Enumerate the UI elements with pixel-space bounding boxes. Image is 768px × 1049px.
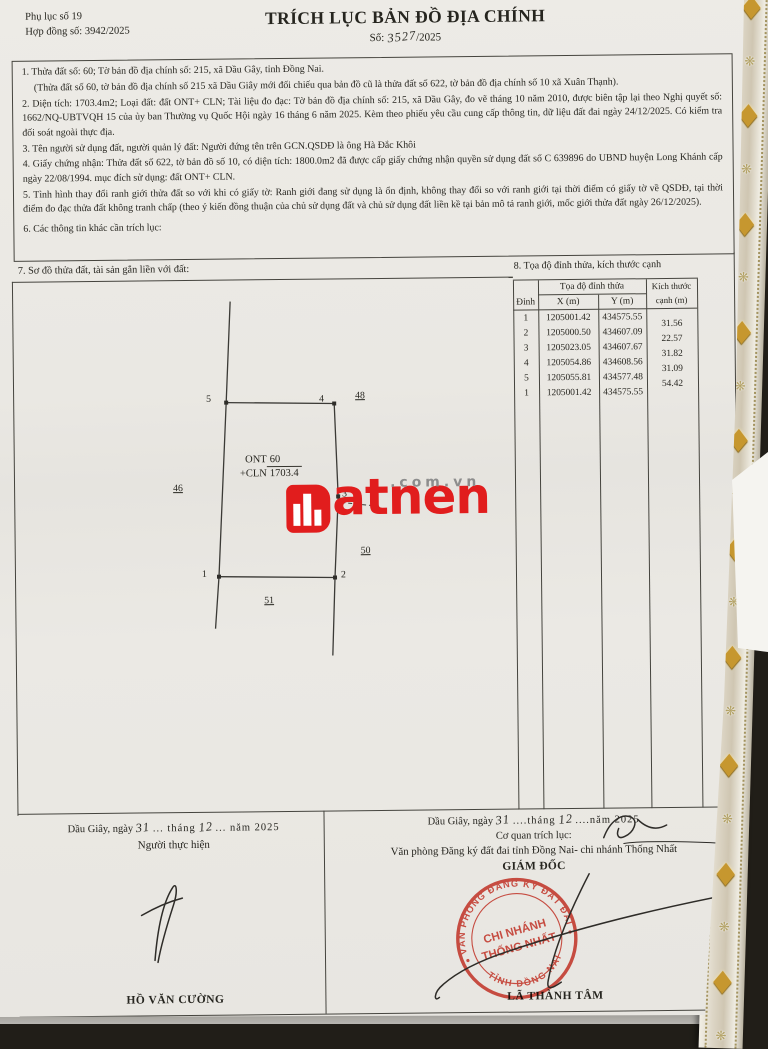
table-row-vertex: 2	[513, 326, 538, 341]
executor-role: Người thực hiện	[34, 838, 314, 853]
frame-rosette-ornament: ❋	[715, 1029, 726, 1042]
datnen-logo-icon	[286, 485, 331, 533]
section8-heading: 8. Tọa độ đỉnh thửa, kích thước cạnh	[514, 258, 714, 271]
frame-diamond-ornament: ◆	[713, 966, 732, 997]
document-number-suffix: /2025	[416, 31, 441, 43]
table-row-x: 1205055.81	[539, 371, 599, 387]
table-row-vertex: 3	[514, 341, 539, 356]
frame-rosette-ornament: ❋	[722, 812, 733, 825]
edge-length: 31.82	[647, 347, 698, 363]
table-row-x: 1205023.05	[539, 341, 599, 357]
table-row-y: 434608.56	[599, 355, 647, 371]
stamp-separator-dot	[568, 930, 572, 934]
parcel-number: 60	[267, 453, 302, 467]
document-number-handwritten: 3527	[386, 28, 417, 46]
table-row-y: 434575.55	[599, 385, 647, 401]
document-title: TRÍCH LỤC BẢN ĐỒ ĐỊA CHÍNH	[165, 4, 645, 30]
table-row-y: 434577.48	[599, 370, 647, 386]
land-use-code-1: ONT	[240, 453, 267, 467]
neighbor-parcel-50: 50	[361, 545, 371, 556]
table-row-y: 434607.09	[598, 325, 646, 341]
title-block: TRÍCH LỤC BẢN ĐỒ ĐỊA CHÍNH Số: 3527/2025	[165, 4, 645, 47]
frame-diamond-ornament: ◆	[719, 749, 738, 780]
table-row-x: 1205001.42	[539, 386, 599, 402]
edge-length: 22.57	[646, 332, 697, 348]
table-row-vertex: 4	[514, 356, 539, 371]
item-2: 2. Diện tích: 1703.4m2; Loại đất: đất ON…	[22, 90, 722, 141]
date-month-handwritten: 12	[557, 811, 573, 828]
date-month-label: ....tháng	[513, 815, 556, 826]
boundary-left-line	[212, 302, 233, 629]
vertex2-label: 2	[341, 569, 346, 580]
vertex1-dot	[217, 575, 221, 579]
table-col-edge: Kích thước cạnh (m)	[646, 279, 697, 310]
date-day-handwritten: 31	[495, 812, 511, 829]
edge-length: 31.56	[646, 317, 697, 333]
table-row-y: 434575.55	[598, 310, 646, 326]
table-line-right	[697, 279, 704, 808]
stamp-separator-dot	[466, 959, 470, 963]
boundary-bottom-line	[219, 575, 335, 578]
document-number-prefix: Số:	[370, 32, 385, 44]
table-row-x: 1205054.86	[539, 356, 599, 372]
vertex4-label: 4	[319, 394, 324, 405]
contract-number: Hợp đồng số: 3942/2025	[25, 24, 130, 40]
table-row-x: 1205001.42	[538, 311, 598, 327]
executor-name: HỒ VĂN CƯỜNG	[65, 993, 285, 1007]
page-border-left	[12, 282, 19, 816]
date-month-handwritten: 12	[198, 819, 214, 836]
table-row-x: 1205000.50	[538, 326, 598, 342]
logo-building-bar	[303, 494, 311, 526]
date-place: Dầu Giây, ngày	[427, 816, 493, 828]
photo-of-land-document: { "doc": { "appendix": "Phụ lục số 19", …	[0, 0, 768, 1024]
logo-building-bar	[314, 510, 321, 526]
date-month-label: ... tháng	[153, 823, 196, 834]
vertex4-dot	[332, 401, 336, 405]
frame-rosette-ornament: ❋	[741, 162, 752, 175]
edge-length: 31.09	[647, 362, 698, 378]
table-row-vertex: 1	[513, 311, 538, 326]
items-section: 1. Thửa đất số: 60; Tờ bản đồ địa chính …	[13, 54, 733, 260]
neighbor-parcel-51: 51	[264, 595, 274, 606]
neighbor-parcel-46: 46	[173, 483, 183, 494]
table-col-x: X (m)	[538, 295, 598, 311]
executor-signature-stroke	[141, 898, 182, 915]
agency-label: Cơ quan trích lục:	[334, 828, 734, 843]
frame-diamond-ornament: ◆	[742, 0, 761, 22]
executor-signature	[154, 886, 177, 963]
vertex1-label: 1	[202, 569, 207, 580]
footer-divider	[323, 811, 326, 1014]
item-6: 6. Các thông tin khác cần trích lục:	[23, 215, 723, 237]
date-day-handwritten: 31	[135, 820, 151, 837]
watermark-domain-text: .com.vn	[390, 474, 480, 491]
frame-diamond-ornament: ◆	[716, 858, 735, 889]
frame-rosette-ornament: ❋	[735, 379, 746, 392]
date-year-label: ....năm 2025	[575, 814, 639, 826]
date-year-label: ... năm 2025	[215, 822, 279, 834]
date-place: Dầu Giây, ngày	[68, 824, 134, 836]
document-content: Phụ lục số 19 Hợp đồng số: 3942/2025 TRÍ…	[0, 0, 752, 1022]
section7-rule	[12, 277, 513, 283]
vertex5-dot	[224, 401, 228, 405]
frame-rosette-ornament: ❋	[718, 921, 729, 934]
table-row-vertex: 1	[514, 386, 539, 401]
executor-block: Dầu Giây, ngày 31 ... tháng 12 ... năm 2…	[34, 819, 314, 853]
table-row-vertex: 5	[514, 371, 539, 386]
frame-rosette-ornament: ❋	[738, 271, 749, 284]
vertex5-label: 5	[206, 394, 211, 405]
item-5: 5. Tình hình thay đổi ranh giới thửa đất…	[23, 181, 723, 217]
logo-building-bar	[293, 504, 300, 526]
appendix-label: Phụ lục số 19	[25, 9, 82, 25]
edge-length: 54.42	[647, 377, 698, 393]
agency-office-name: Văn phòng Đăng ký đất đai tỉnh Đồng Nai-…	[334, 842, 734, 858]
land-use-code-2: +CLN	[240, 467, 267, 481]
datnen-watermark: atnen .com.vn	[286, 473, 497, 545]
section7-heading: 7. Sơ đồ thửa đất, tài sản gắn liền với …	[18, 264, 190, 277]
table-group-header: Tọa độ đỉnh thửa	[538, 279, 646, 295]
frame-rosette-ornament: ❋	[725, 704, 736, 717]
executor-date-line: Dầu Giây, ngày 31 ... tháng 12 ... năm 2…	[34, 819, 314, 837]
vertex2-dot	[333, 575, 337, 579]
document-number-line: Số: 3527/2025	[165, 27, 645, 47]
neighbor-parcel-48: 48	[355, 390, 365, 401]
table-col-y: Y (m)	[598, 294, 646, 310]
agency-date-line: Dầu Giây, ngày 31 ....tháng 12 ....năm 2…	[334, 810, 734, 829]
boundary-top-line	[226, 401, 334, 404]
document-paper: Phụ lục số 19 Hợp đồng số: 3942/2025 TRÍ…	[0, 0, 746, 1018]
table-col-vertex: Đỉnh	[513, 295, 538, 310]
coordinate-table: Tọa độ đỉnh thửa Kích thước cạnh (m) Đỉn…	[513, 278, 704, 809]
table-row-y: 434607.67	[599, 340, 647, 356]
frame-rosette-ornament: ❋	[744, 54, 755, 67]
